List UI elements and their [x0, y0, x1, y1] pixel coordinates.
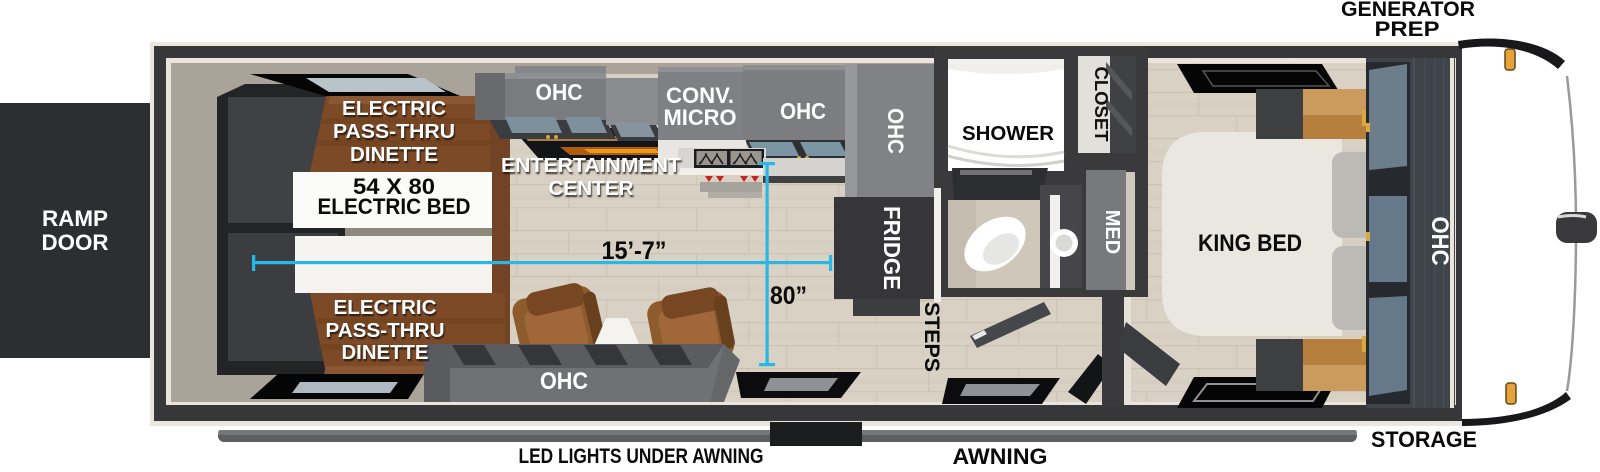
- svg-text:15’-7”: 15’-7”: [602, 237, 667, 265]
- svg-text:SHOWER: SHOWER: [962, 123, 1055, 145]
- svg-text:DINETTE: DINETTE: [342, 342, 429, 364]
- svg-text:OHC: OHC: [1426, 217, 1453, 266]
- svg-text:PREP: PREP: [1375, 18, 1440, 41]
- svg-text:OHC: OHC: [536, 79, 583, 105]
- svg-text:DINETTE: DINETTE: [350, 144, 438, 166]
- svg-text:80”: 80”: [770, 282, 807, 310]
- svg-text:MICRO: MICRO: [664, 105, 737, 130]
- svg-text:LED LIGHTS UNDER AWNING: LED LIGHTS UNDER AWNING: [519, 445, 764, 467]
- svg-text:CENTER: CENTER: [549, 178, 635, 200]
- svg-text:DOOR: DOOR: [42, 230, 109, 255]
- svg-text:ELECTRIC: ELECTRIC: [334, 297, 437, 319]
- svg-text:KING BED: KING BED: [1198, 230, 1302, 257]
- svg-text:STEPS: STEPS: [920, 302, 943, 372]
- svg-text:AWNING: AWNING: [953, 444, 1048, 467]
- svg-text:ENTERTAINMENT: ENTERTAINMENT: [501, 155, 681, 177]
- svg-text:PASS-THRU: PASS-THRU: [333, 121, 455, 143]
- svg-text:ELECTRIC BED: ELECTRIC BED: [318, 194, 471, 219]
- svg-text:PASS-THRU: PASS-THRU: [326, 320, 445, 342]
- svg-text:OHC: OHC: [883, 108, 908, 154]
- svg-text:RAMP: RAMP: [42, 206, 108, 231]
- svg-text:OHC: OHC: [780, 98, 826, 124]
- svg-text:CLOSET: CLOSET: [1091, 67, 1111, 142]
- svg-text:STORAGE: STORAGE: [1371, 427, 1477, 452]
- svg-text:FRIDGE: FRIDGE: [879, 206, 905, 290]
- svg-text:MED: MED: [1101, 210, 1123, 254]
- svg-text:ELECTRIC: ELECTRIC: [342, 98, 446, 120]
- svg-text:OHC: OHC: [540, 368, 588, 395]
